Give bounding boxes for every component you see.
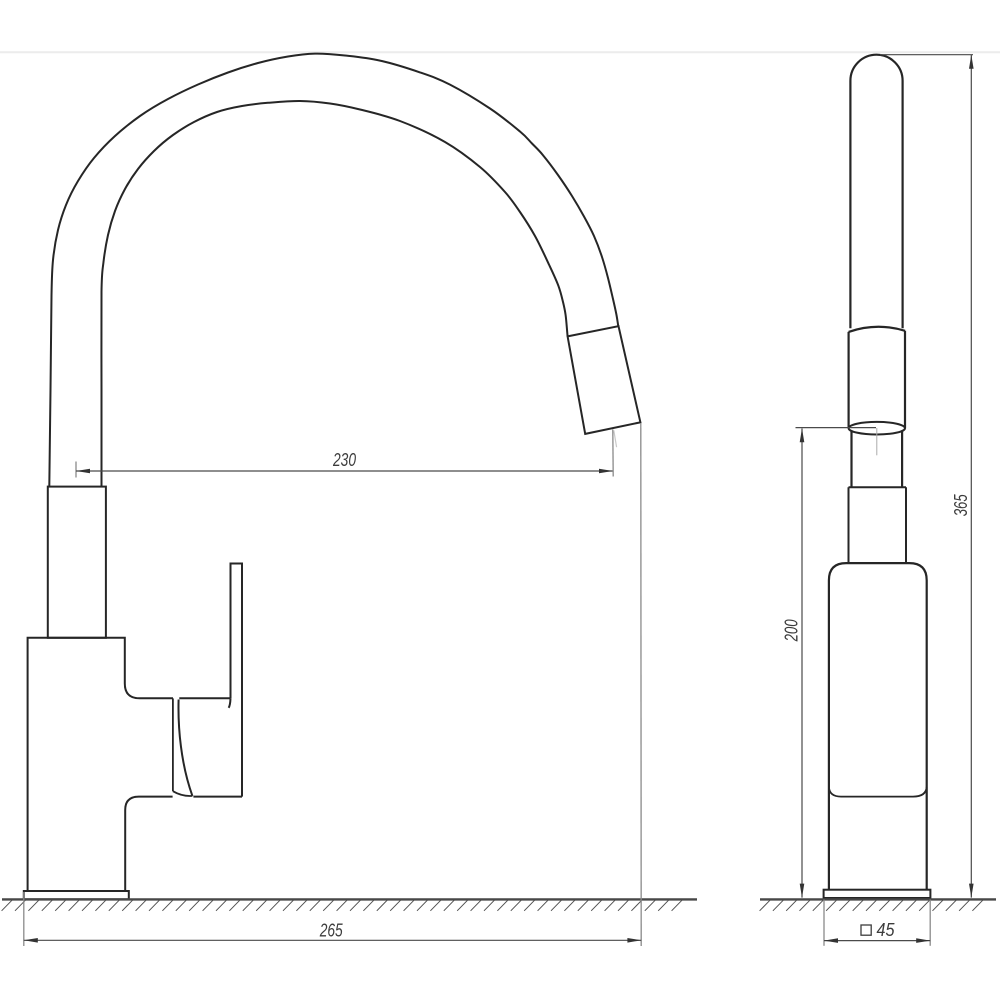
svg-text:200: 200 bbox=[780, 619, 801, 642]
svg-text:45: 45 bbox=[877, 919, 896, 940]
svg-text:365: 365 bbox=[950, 494, 971, 517]
svg-text:265: 265 bbox=[319, 921, 344, 941]
svg-text:230: 230 bbox=[332, 450, 356, 470]
